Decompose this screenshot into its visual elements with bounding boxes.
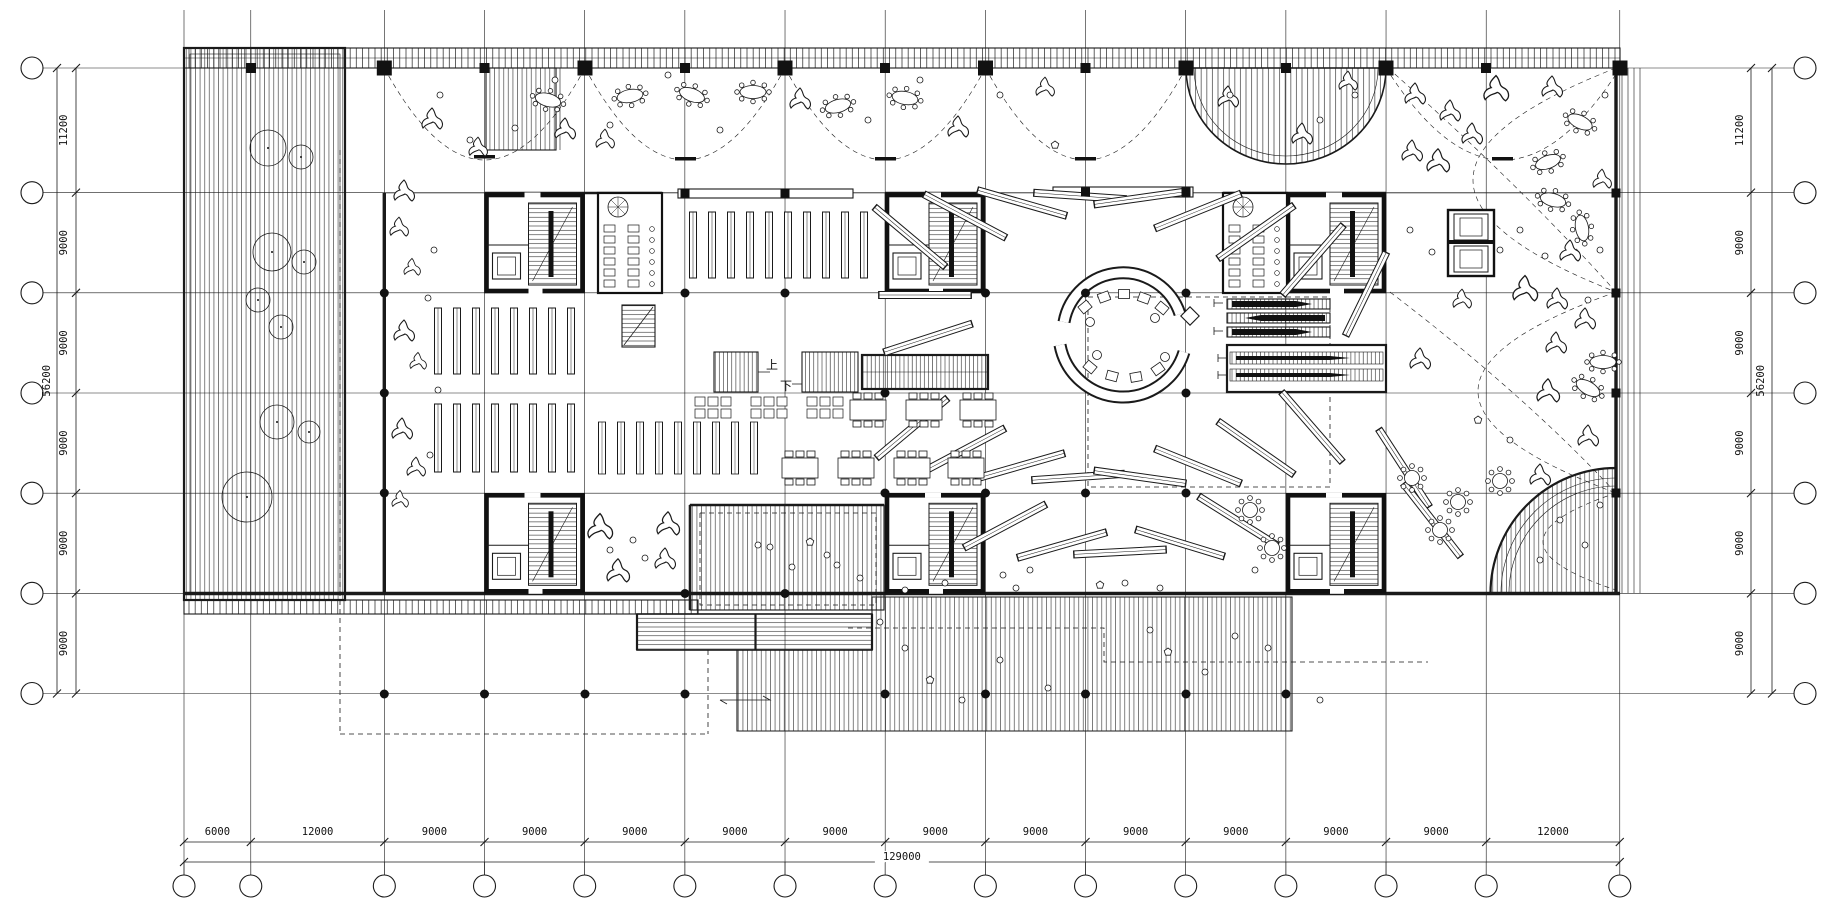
column-square bbox=[1081, 63, 1091, 73]
round-table-with-chairs bbox=[1398, 464, 1427, 493]
stone-marker bbox=[665, 72, 671, 78]
oval-table-with-chairs bbox=[817, 90, 858, 122]
book-stack-shelf bbox=[842, 212, 849, 278]
east-curtain-wall bbox=[1622, 68, 1640, 594]
desk-seat bbox=[1083, 360, 1097, 374]
grid-bubble bbox=[674, 875, 696, 897]
grid-bubble bbox=[21, 182, 43, 204]
tree-symbol bbox=[1402, 140, 1423, 161]
carrel-cluster bbox=[807, 397, 843, 418]
oval-table-with-chairs bbox=[1527, 145, 1569, 180]
oval-table-with-chairs bbox=[1532, 184, 1573, 216]
book-stack-shelf bbox=[804, 212, 811, 278]
tree-symbol bbox=[394, 320, 415, 341]
tree-symbol bbox=[1542, 76, 1563, 97]
stair-core bbox=[487, 493, 583, 594]
grid-bubble bbox=[1609, 875, 1631, 897]
tree-symbol bbox=[1440, 100, 1461, 121]
column-dot bbox=[881, 489, 890, 498]
grid-bubble bbox=[574, 875, 596, 897]
stone-marker bbox=[997, 657, 1003, 663]
column-dot bbox=[681, 589, 690, 598]
tree-symbol bbox=[392, 418, 413, 439]
dimension-label: 9000 bbox=[522, 826, 547, 838]
radial-stack-shelf bbox=[1279, 390, 1345, 464]
stone-marker bbox=[857, 575, 863, 581]
dimension-label: 9000 bbox=[1323, 826, 1348, 838]
west-small-stair bbox=[622, 305, 655, 347]
tree-symbol bbox=[1410, 348, 1431, 369]
column-square bbox=[681, 189, 690, 198]
column-dot bbox=[881, 389, 890, 398]
desk-stool bbox=[1093, 351, 1102, 360]
stone-marker bbox=[1474, 416, 1482, 423]
book-stack-shelf bbox=[747, 212, 754, 278]
stone-marker bbox=[1027, 567, 1033, 573]
book-stack-shelf bbox=[713, 422, 720, 474]
tree-symbol bbox=[596, 129, 614, 148]
stone-marker bbox=[824, 552, 830, 558]
grid-bubble bbox=[774, 875, 796, 897]
stone-marker bbox=[1517, 227, 1523, 233]
dimension-label: 9000 bbox=[923, 826, 948, 838]
stair-down-label: 下 bbox=[780, 379, 792, 393]
tree-symbol bbox=[1575, 308, 1596, 329]
column-square bbox=[377, 61, 392, 76]
stone-marker bbox=[1597, 502, 1603, 508]
stone-marker bbox=[642, 555, 648, 561]
stair-core bbox=[887, 193, 983, 294]
tree-symbol bbox=[1593, 169, 1611, 188]
grid-bubble bbox=[21, 57, 43, 79]
floor-plan-canvas: 上 下 600012000900090009000900090009000900… bbox=[0, 0, 1827, 917]
column-dot bbox=[1282, 690, 1291, 699]
stone-marker bbox=[437, 92, 443, 98]
stair-core bbox=[1288, 493, 1384, 594]
stair-core bbox=[487, 193, 583, 294]
grid-bubble bbox=[21, 582, 43, 604]
book-stack-shelf bbox=[618, 422, 625, 474]
tree-symbol bbox=[588, 514, 613, 539]
dimension-label: 6000 bbox=[205, 826, 230, 838]
tree-symbol bbox=[1036, 77, 1054, 96]
round-table-with-chairs bbox=[1236, 496, 1265, 525]
tree-symbol bbox=[410, 352, 426, 369]
book-stack-shelf bbox=[599, 422, 606, 474]
grid-bubble bbox=[474, 875, 496, 897]
dimension-total-label: 56200 bbox=[1755, 365, 1767, 397]
tree-symbol bbox=[1453, 289, 1471, 308]
column-square bbox=[778, 61, 793, 76]
radial-stack-shelf bbox=[1135, 526, 1225, 560]
column-dot bbox=[1081, 289, 1090, 298]
stone-marker bbox=[1013, 585, 1019, 591]
tree-symbol bbox=[1484, 76, 1509, 101]
stone-marker bbox=[1252, 567, 1258, 573]
stone-marker bbox=[789, 564, 795, 570]
grid-bubble bbox=[21, 482, 43, 504]
stone-marker bbox=[1497, 247, 1503, 253]
stone-marker bbox=[877, 619, 883, 625]
desk-seat bbox=[1151, 362, 1165, 376]
reading-tables bbox=[782, 393, 996, 485]
stone-marker bbox=[942, 580, 948, 586]
dimension-label: 9000 bbox=[1734, 531, 1746, 556]
table-with-chairs bbox=[782, 451, 818, 485]
table-with-chairs bbox=[948, 451, 984, 485]
tree-symbol bbox=[607, 559, 630, 582]
tree-symbol bbox=[1405, 83, 1426, 104]
stone-marker bbox=[607, 547, 613, 553]
book-stack-shelf bbox=[785, 212, 792, 278]
radial-stack-shelf bbox=[879, 292, 971, 299]
book-stack-shelf bbox=[568, 308, 575, 374]
book-stack-shelf bbox=[568, 404, 575, 472]
dimension-label: 9000 bbox=[58, 531, 70, 556]
column-square bbox=[680, 63, 690, 73]
column-dot bbox=[1182, 389, 1191, 398]
stone-marker bbox=[1557, 517, 1563, 523]
book-stack-shelf bbox=[511, 404, 518, 472]
book-stack-shelf bbox=[435, 308, 442, 374]
south-terraces bbox=[637, 468, 1616, 731]
stone-marker bbox=[755, 542, 761, 548]
south-walkway bbox=[184, 600, 698, 614]
tree-symbol bbox=[394, 180, 415, 201]
stone-marker bbox=[552, 77, 558, 83]
desk-seat bbox=[1119, 290, 1130, 299]
dimension-label: 9000 bbox=[58, 330, 70, 355]
tree-symbol bbox=[1513, 276, 1538, 301]
desk-workstations bbox=[1078, 290, 1170, 383]
tree-symbol bbox=[1547, 288, 1568, 309]
desk-stool bbox=[1151, 314, 1160, 323]
book-stack-shelf bbox=[732, 422, 739, 474]
book-stack-shelf bbox=[530, 404, 537, 472]
oval-table-with-chairs bbox=[1585, 350, 1622, 374]
column-square bbox=[1612, 289, 1621, 298]
column-square bbox=[480, 63, 490, 73]
escalator-bank-upper bbox=[1214, 299, 1330, 337]
column-dot bbox=[981, 289, 990, 298]
building-plan: 上 下 bbox=[184, 48, 1640, 734]
dimension-label: 9000 bbox=[58, 631, 70, 656]
carrel-cluster bbox=[751, 397, 787, 418]
stone-marker bbox=[902, 645, 908, 651]
stone-marker bbox=[427, 452, 433, 458]
book-stack-shelf bbox=[709, 212, 716, 278]
column-square bbox=[1081, 188, 1090, 197]
stone-marker bbox=[431, 247, 437, 253]
escalators-and-stairs: 上 下 bbox=[622, 299, 1386, 393]
stone-marker bbox=[607, 122, 613, 128]
grid-bubble bbox=[373, 875, 395, 897]
column-square bbox=[1182, 188, 1191, 197]
stone-marker bbox=[997, 92, 1003, 98]
grid-bubble bbox=[1794, 482, 1816, 504]
grid-bubble bbox=[1794, 182, 1816, 204]
stone-marker bbox=[1542, 253, 1548, 259]
west-roof-deck bbox=[184, 48, 345, 600]
table-with-chairs bbox=[894, 451, 930, 485]
table-with-chairs bbox=[960, 393, 996, 427]
stone-marker bbox=[425, 295, 431, 301]
stone-marker bbox=[1147, 627, 1153, 633]
stone-marker bbox=[865, 117, 871, 123]
tree-symbol bbox=[657, 512, 680, 535]
tree-symbol bbox=[404, 258, 420, 275]
stone-marker bbox=[1597, 247, 1603, 253]
stone-marker bbox=[1582, 542, 1588, 548]
column-square bbox=[880, 63, 890, 73]
column-dot bbox=[681, 690, 690, 699]
tree-symbol bbox=[555, 118, 576, 139]
round-table-with-chairs bbox=[1486, 467, 1515, 496]
round-table-with-chairs bbox=[1444, 488, 1473, 517]
toilet-room bbox=[598, 193, 662, 293]
grid-bubble bbox=[874, 875, 896, 897]
stone-marker bbox=[834, 562, 840, 568]
stone-marker bbox=[1122, 580, 1128, 586]
radial-stack-shelf bbox=[1197, 494, 1279, 549]
tree-symbol bbox=[1427, 149, 1450, 172]
stone-marker bbox=[1507, 437, 1513, 443]
desk-stool bbox=[1086, 318, 1095, 327]
bridge-beam bbox=[678, 189, 853, 198]
dimension-label: 9000 bbox=[1734, 430, 1746, 455]
stone-marker bbox=[959, 697, 965, 703]
grid-bubble bbox=[1794, 57, 1816, 79]
desk-seat bbox=[1106, 370, 1119, 382]
stone-marker bbox=[630, 537, 636, 543]
table-with-chairs bbox=[850, 393, 886, 427]
grid-bubble bbox=[1275, 875, 1297, 897]
stone-marker bbox=[1602, 92, 1608, 98]
column-square bbox=[1612, 389, 1621, 398]
radial-stack-shelf bbox=[1216, 419, 1296, 478]
book-stack-shelf bbox=[492, 404, 499, 472]
book-stack-shelf bbox=[861, 212, 868, 278]
book-stack-shelf bbox=[473, 404, 480, 472]
stone-marker bbox=[512, 125, 518, 131]
tree-symbol bbox=[407, 457, 425, 476]
stair-up-label: 上 bbox=[766, 358, 778, 372]
stone-marker bbox=[1429, 249, 1435, 255]
circular-info-desk bbox=[1060, 273, 1199, 397]
column-dot bbox=[681, 289, 690, 298]
stone-marker bbox=[1537, 557, 1543, 563]
column-dot bbox=[380, 289, 389, 298]
grid-bubble bbox=[1375, 875, 1397, 897]
stone-marker bbox=[435, 387, 441, 393]
stone-marker bbox=[1317, 697, 1323, 703]
dimension-label: 9000 bbox=[1423, 826, 1448, 838]
column-square bbox=[978, 61, 993, 76]
dimension-label: 11200 bbox=[1734, 115, 1746, 147]
tree-symbol bbox=[1537, 379, 1560, 402]
dimension-label: 9000 bbox=[58, 430, 70, 455]
stone-marker bbox=[917, 77, 923, 83]
column-square bbox=[1179, 61, 1194, 76]
column-dot bbox=[781, 589, 790, 598]
table-with-chairs bbox=[906, 393, 942, 427]
tree-symbol bbox=[655, 548, 676, 569]
tree-symbol bbox=[1546, 332, 1567, 353]
column-dot bbox=[380, 690, 389, 699]
dimension-label: 9000 bbox=[1734, 230, 1746, 255]
tree-symbol bbox=[948, 116, 969, 137]
dimension-label: 9000 bbox=[422, 826, 447, 838]
stone-marker bbox=[1157, 585, 1163, 591]
column-dot bbox=[1182, 289, 1191, 298]
stone-marker bbox=[1317, 117, 1323, 123]
column-square bbox=[781, 189, 790, 198]
column-dot bbox=[480, 690, 489, 699]
stone-marker bbox=[717, 127, 723, 133]
dimension-label: 9000 bbox=[1734, 330, 1746, 355]
grid-bubble bbox=[974, 875, 996, 897]
book-stack-shelf bbox=[511, 308, 518, 374]
book-stack-shelf bbox=[694, 422, 701, 474]
column-dot bbox=[981, 690, 990, 699]
grid-bubble bbox=[21, 382, 43, 404]
column-dot bbox=[1081, 489, 1090, 498]
dimension-label: 9000 bbox=[622, 826, 647, 838]
tree-symbol bbox=[422, 108, 443, 129]
book-stack-shelf bbox=[766, 212, 773, 278]
grid-bubble bbox=[21, 282, 43, 304]
book-stack-shelf bbox=[435, 404, 442, 472]
oval-table-with-chairs bbox=[885, 83, 925, 113]
carrel-seats bbox=[695, 397, 843, 418]
radial-stack-shelf bbox=[1074, 546, 1167, 558]
stone-marker bbox=[1585, 297, 1591, 303]
tree-symbol bbox=[1530, 464, 1551, 485]
oval-table-with-chairs bbox=[610, 81, 650, 111]
book-stack-shelf bbox=[728, 212, 735, 278]
stone-marker bbox=[1352, 92, 1358, 98]
column-dot bbox=[881, 690, 890, 699]
radial-stack-shelf bbox=[883, 320, 973, 355]
column-square bbox=[1379, 61, 1394, 76]
round-table-with-chairs bbox=[1426, 516, 1455, 545]
floor-plan-svg: 上 下 600012000900090009000900090009000900… bbox=[0, 0, 1827, 917]
dimension-total-label: 129000 bbox=[883, 851, 921, 863]
column-dot bbox=[581, 690, 590, 699]
book-stack-shelf bbox=[454, 404, 461, 472]
column-square bbox=[1481, 63, 1491, 73]
book-stack-shelf bbox=[530, 308, 537, 374]
book-stack-shelf bbox=[823, 212, 830, 278]
round-table-with-chairs bbox=[1258, 534, 1287, 563]
column-dot bbox=[1182, 690, 1191, 699]
tree-symbol bbox=[1578, 425, 1599, 446]
dimension-label: 9000 bbox=[58, 230, 70, 255]
dimension-label: 9000 bbox=[722, 826, 747, 838]
stone-marker bbox=[1000, 572, 1006, 578]
book-stack-shelf bbox=[549, 308, 556, 374]
dimension-label: 9000 bbox=[1123, 826, 1148, 838]
dimension-label: 11200 bbox=[58, 115, 70, 147]
elevator-pair bbox=[1448, 210, 1494, 276]
column-square bbox=[246, 63, 256, 73]
grid-bubble bbox=[1794, 282, 1816, 304]
column-square bbox=[1612, 489, 1621, 498]
oval-table-with-chairs bbox=[1558, 104, 1601, 141]
book-stack-shelf bbox=[637, 422, 644, 474]
center-small-stairs: 上 下 bbox=[714, 352, 858, 393]
column-dot bbox=[1081, 690, 1090, 699]
grid-bubble bbox=[1794, 683, 1816, 705]
book-stack-shelf bbox=[549, 404, 556, 472]
book-stack-shelf bbox=[473, 308, 480, 374]
column-square bbox=[578, 61, 593, 76]
grid-bubble bbox=[1175, 875, 1197, 897]
column-square bbox=[1613, 61, 1628, 76]
grid-bubble bbox=[1475, 875, 1497, 897]
stone-marker bbox=[1407, 227, 1413, 233]
grid-bubble bbox=[1794, 382, 1816, 404]
book-stack-shelf bbox=[656, 422, 663, 474]
carrel-cluster bbox=[695, 397, 731, 418]
book-stack-shelf bbox=[492, 308, 499, 374]
desk-stool bbox=[1161, 353, 1170, 362]
oval-table-with-chairs bbox=[1566, 369, 1609, 408]
grid-bubble bbox=[173, 875, 195, 897]
grid-bubble bbox=[240, 875, 262, 897]
stone-marker bbox=[467, 137, 473, 143]
dimension-label: 9000 bbox=[1734, 631, 1746, 656]
stone-marker bbox=[1051, 141, 1059, 148]
desk-seat bbox=[1155, 301, 1169, 315]
book-stack-shelf bbox=[751, 422, 758, 474]
stone-marker bbox=[1232, 633, 1238, 639]
book-stack-shelf bbox=[454, 308, 461, 374]
escalator-bank-lower bbox=[1218, 345, 1386, 392]
canopy-scallops bbox=[384, 68, 1620, 164]
column-square bbox=[1612, 189, 1621, 198]
stone-marker bbox=[1096, 581, 1104, 588]
grid-bubble bbox=[1794, 582, 1816, 604]
column-square bbox=[1281, 63, 1291, 73]
tree-symbol bbox=[1560, 240, 1581, 261]
grid-bubble bbox=[1075, 875, 1097, 897]
tree-symbol bbox=[790, 88, 811, 109]
toilet-room bbox=[1223, 193, 1287, 293]
column-dot bbox=[981, 489, 990, 498]
column-dot bbox=[380, 489, 389, 498]
desk-seat bbox=[1137, 292, 1150, 304]
oval-table-with-chairs bbox=[671, 78, 713, 113]
desk-seat bbox=[1078, 300, 1092, 314]
dimension-label: 9000 bbox=[1023, 826, 1048, 838]
dimension-label: 9000 bbox=[822, 826, 847, 838]
desk-seat bbox=[1130, 372, 1142, 383]
stone-marker bbox=[767, 544, 773, 550]
column-dot bbox=[380, 389, 389, 398]
dimension-label: 12000 bbox=[1537, 826, 1569, 838]
column-dot bbox=[1182, 489, 1191, 498]
stone-marker bbox=[1265, 645, 1271, 651]
table-with-chairs bbox=[838, 451, 874, 485]
dimension-label: 9000 bbox=[1223, 826, 1248, 838]
tree-symbol bbox=[1462, 123, 1483, 144]
north-pergola-strip bbox=[184, 48, 1620, 68]
oval-table-with-chairs bbox=[735, 80, 772, 104]
stone-marker bbox=[1202, 669, 1208, 675]
dimension-label: 12000 bbox=[302, 826, 334, 838]
stone-marker bbox=[1045, 685, 1051, 691]
